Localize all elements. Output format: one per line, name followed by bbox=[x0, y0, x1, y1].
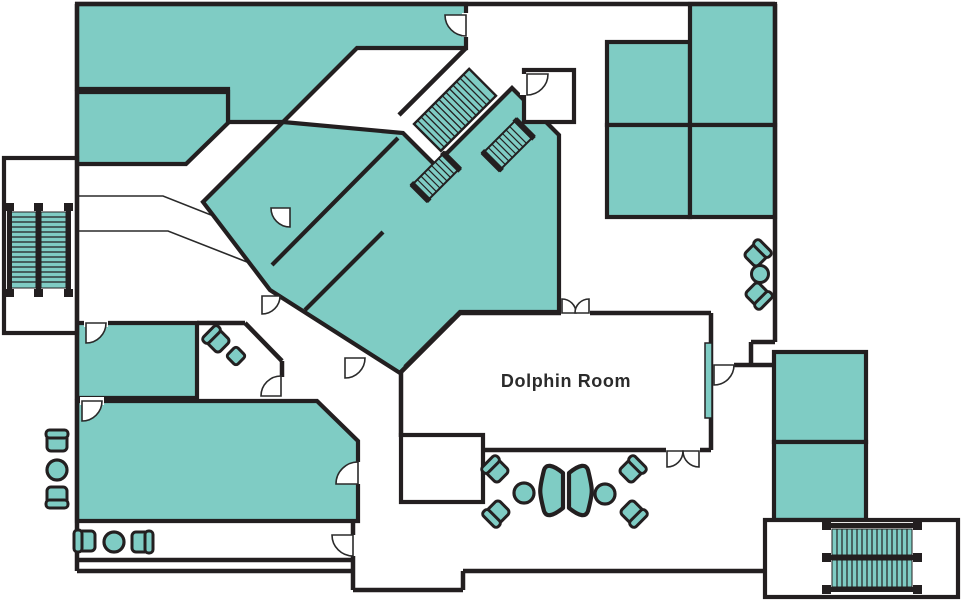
round-table-icon bbox=[104, 532, 124, 552]
chair-icon bbox=[132, 531, 153, 553]
door-swing-icon bbox=[262, 296, 280, 314]
door-swing-icon bbox=[714, 365, 734, 385]
chair-icon bbox=[74, 530, 95, 552]
door-swing-icon bbox=[332, 535, 353, 556]
dolphin-room-label: Dolphin Room bbox=[501, 371, 631, 391]
door-swing-icon bbox=[575, 299, 589, 313]
room bbox=[607, 42, 690, 125]
chair-icon bbox=[46, 430, 68, 451]
door-swing-icon bbox=[683, 451, 699, 467]
door-swing-icon bbox=[562, 299, 576, 313]
escalator-icon bbox=[822, 521, 922, 594]
chair-icon bbox=[617, 454, 647, 484]
door-swing-icon bbox=[667, 451, 683, 467]
room bbox=[690, 125, 775, 217]
room bbox=[77, 401, 358, 521]
round-table-icon bbox=[47, 460, 67, 480]
room bbox=[690, 4, 775, 125]
room bbox=[774, 352, 866, 442]
chair-icon bbox=[742, 238, 772, 268]
room bbox=[607, 125, 690, 217]
floor-plan-svg: Dolphin Room bbox=[0, 0, 965, 600]
chair-icon bbox=[743, 280, 773, 310]
wall-recess bbox=[705, 343, 712, 418]
chair-icon bbox=[481, 498, 511, 528]
chair-icon bbox=[618, 498, 648, 528]
lounge-settee-icon bbox=[540, 466, 592, 515]
door-swing-icon bbox=[345, 358, 365, 378]
room bbox=[774, 442, 866, 520]
chair-icon bbox=[46, 487, 68, 508]
round-table-icon bbox=[595, 484, 615, 504]
escalator-icon bbox=[5, 203, 73, 297]
chair-icon bbox=[201, 324, 231, 354]
side-table-icon bbox=[226, 346, 246, 366]
room bbox=[77, 92, 228, 164]
round-table-icon bbox=[514, 483, 534, 503]
door-swing-icon bbox=[261, 376, 281, 396]
room-small bbox=[401, 435, 483, 502]
round-table-icon bbox=[752, 266, 769, 283]
floor-plan: Dolphin Room bbox=[0, 0, 965, 600]
